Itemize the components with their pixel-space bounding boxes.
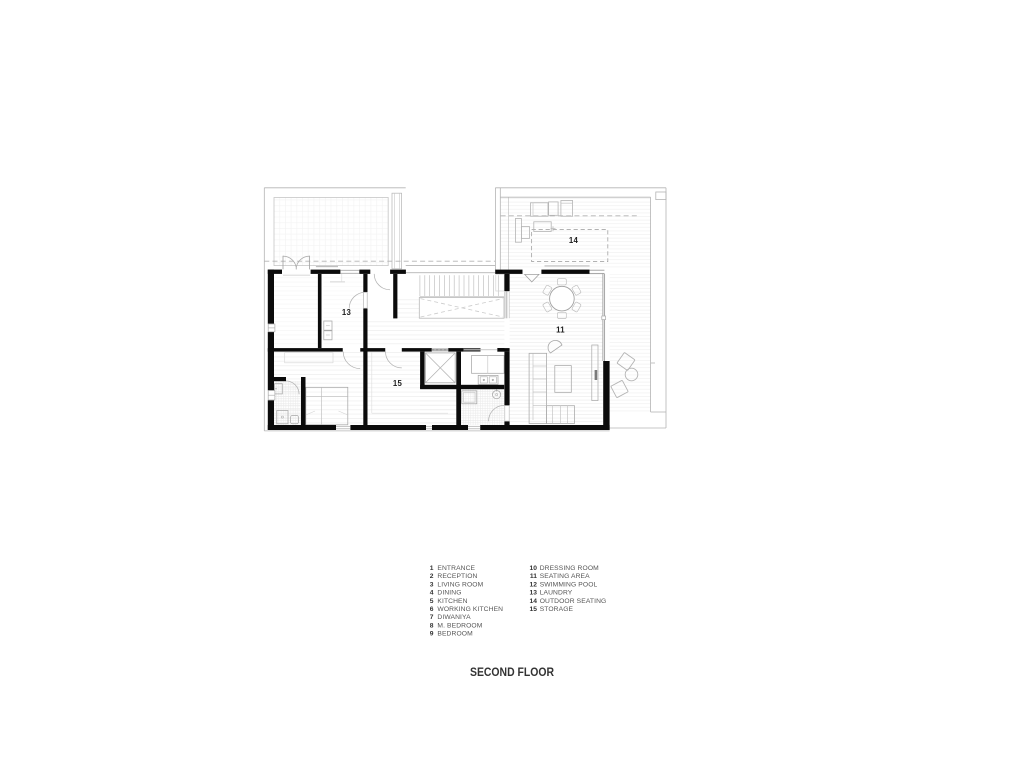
- svg-text:3: 3: [430, 581, 434, 588]
- svg-text:14: 14: [569, 236, 579, 245]
- svg-text:10: 10: [529, 565, 537, 572]
- svg-text:DIWANIYA: DIWANIYA: [437, 614, 471, 621]
- svg-text:SECOND FLOOR: SECOND FLOOR: [470, 665, 554, 679]
- svg-text:11: 11: [556, 326, 565, 335]
- svg-text:13: 13: [529, 590, 537, 597]
- svg-text:LAUNDRY: LAUNDRY: [540, 590, 573, 597]
- svg-text:DRESSING ROOM: DRESSING ROOM: [540, 565, 599, 572]
- svg-text:1: 1: [430, 565, 434, 572]
- svg-text:OUTDOOR SEATING: OUTDOOR SEATING: [540, 598, 607, 605]
- svg-text:13: 13: [342, 308, 352, 317]
- svg-text:5: 5: [430, 598, 434, 605]
- svg-text:RECEPTION: RECEPTION: [437, 573, 477, 580]
- svg-text:STORAGE: STORAGE: [540, 606, 574, 613]
- svg-text:BEDROOM: BEDROOM: [437, 631, 473, 638]
- svg-text:SWIMMING POOL: SWIMMING POOL: [540, 581, 598, 588]
- svg-text:7: 7: [430, 614, 434, 621]
- svg-text:ENTRANCE: ENTRANCE: [437, 565, 475, 572]
- svg-text:8: 8: [430, 622, 434, 629]
- svg-text:15: 15: [393, 379, 403, 388]
- svg-text:11: 11: [530, 573, 537, 580]
- svg-text:SEATING AREA: SEATING AREA: [540, 573, 590, 580]
- svg-text:M. BEDROOM: M. BEDROOM: [437, 622, 482, 629]
- svg-text:12: 12: [529, 581, 537, 588]
- svg-text:15: 15: [529, 606, 537, 613]
- svg-text:4: 4: [430, 590, 434, 597]
- svg-text:2: 2: [430, 573, 434, 580]
- svg-text:DINING: DINING: [437, 590, 461, 597]
- svg-text:6: 6: [430, 606, 434, 613]
- svg-text:14: 14: [529, 598, 537, 605]
- svg-text:9: 9: [430, 631, 434, 638]
- svg-text:KITCHEN: KITCHEN: [437, 598, 467, 605]
- svg-text:WORKING KITCHEN: WORKING KITCHEN: [437, 606, 503, 613]
- svg-text:LIVING ROOM: LIVING ROOM: [437, 581, 483, 588]
